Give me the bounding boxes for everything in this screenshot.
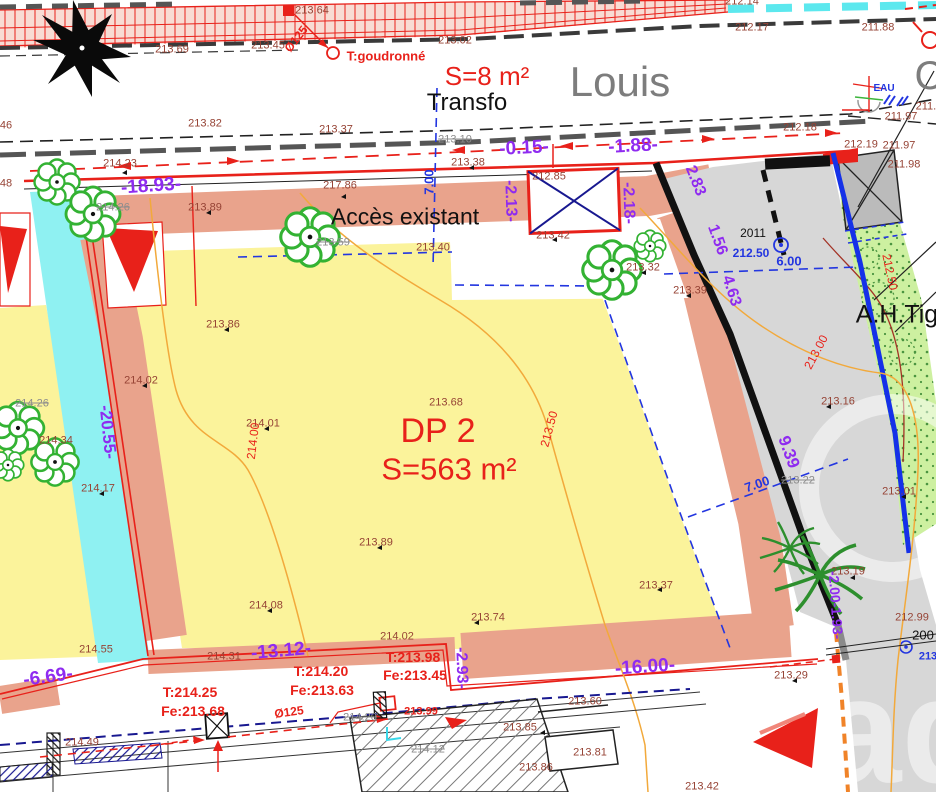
map-label: 213.89 [359, 538, 393, 549]
map-label: 211.88 [862, 23, 895, 34]
map-label: 212.14 [725, 0, 759, 8]
road-surface-label: T:goudronné [347, 50, 426, 63]
map-label: 212.85 [532, 172, 566, 183]
parcel-area-label: S=563 m² [381, 454, 516, 485]
map-label: 48 [0, 179, 12, 190]
map-label: 9.39 [775, 434, 802, 471]
map-label: Ø125 [282, 24, 310, 55]
map-label: 7.00 [743, 474, 771, 495]
map-label: 214.26 [15, 399, 49, 410]
map-label: 213.68 [429, 398, 463, 409]
parcel-id-label: DP 2 [401, 414, 476, 448]
map-label: 211.97 [883, 141, 916, 152]
transfo-area-label: S=8 m² [445, 63, 530, 89]
map-label: 6.00 [776, 255, 801, 268]
transfo-label: Transfo [427, 91, 507, 115]
map-label: 213.29 [774, 671, 808, 682]
map-label: 214.34 [39, 436, 73, 447]
map-label: 213.81 [573, 748, 607, 759]
map-label: 214.02 [124, 376, 158, 387]
map-label: 214.17 [81, 484, 115, 495]
map-label: 213.37 [639, 581, 673, 592]
map-label: 7.00 [423, 169, 436, 194]
map-label: 213.86 [519, 763, 553, 774]
map-label: 211.98 [888, 160, 921, 171]
map-label: 214.08 [249, 601, 283, 612]
map-label: 213.45 [251, 41, 285, 52]
map-label: 214.12 [411, 745, 445, 756]
map-label: 213.37 [319, 125, 353, 136]
map-label: -2.13- [501, 180, 518, 222]
cadastral-plan: ad [0, 0, 936, 792]
map-label: -18.93- [120, 174, 181, 197]
map-label: 212.99 [895, 613, 929, 624]
map-label: 212.19 [844, 140, 878, 151]
map-label: -0.15- [499, 137, 550, 159]
map-label: 213.02 [438, 36, 472, 47]
map-label: 213.89 [188, 203, 222, 214]
map-label: 214.23 [103, 159, 137, 170]
map-label: T:213.98 [386, 650, 440, 664]
map-label: 213.86 [206, 320, 240, 331]
street-name-label: Louis [570, 61, 670, 103]
map-label: 212.50 [733, 247, 770, 259]
map-label: 1.56 [704, 223, 730, 258]
map-label: 213.69 [155, 45, 189, 56]
map-label: 2.83 [682, 164, 709, 199]
contour-label: 214.00 [245, 422, 261, 460]
map-label: 217.86 [323, 181, 357, 192]
map-label: -6.69- [22, 664, 74, 690]
map-label: 213.16 [821, 397, 855, 408]
label-layer: 213.64213.69213.45213.02212.14212.17211.… [0, 0, 936, 792]
map-label: 213.42 [685, 782, 719, 792]
map-label: 213.59 [316, 238, 350, 249]
map-label: 214.31 [207, 652, 241, 663]
map-label: 214.02 [380, 632, 414, 643]
map-label: 46 [0, 121, 12, 132]
map-label: 213.40 [416, 243, 450, 254]
map-label: 213.32 [626, 263, 660, 274]
map-label: 211.8 [916, 102, 936, 113]
neighbor-label: A.H.Tig [856, 303, 936, 328]
map-label: T:214.20 [294, 664, 348, 678]
water-label: EAU [873, 84, 894, 94]
map-label: -2.00-1.93- [827, 570, 846, 639]
map-label: T:214.25 [163, 685, 217, 699]
contour-label: 213.50 [538, 410, 559, 449]
contour-label: 213.00 [802, 333, 830, 371]
map-label: 213.64 [295, 6, 329, 17]
map-label: 214.49 [65, 738, 99, 749]
access-label: Accès existant [331, 206, 479, 229]
contour-label: 212.50 [880, 253, 899, 291]
map-label: Fe:213.63 [290, 683, 354, 697]
map-label: 212.18 [783, 123, 817, 134]
map-label: 213.82 [188, 119, 222, 130]
map-label: 212.17 [735, 23, 769, 34]
map-label: 211.97 [885, 112, 918, 123]
map-label: 213.38 [451, 158, 485, 169]
map-label: Fe:213.45 [383, 668, 447, 682]
map-label: -20.55- [97, 404, 120, 459]
map-label: 4.63 [719, 274, 744, 309]
map-label: -1.88- [608, 135, 659, 157]
map-label: 213.60 [568, 697, 602, 708]
map-label: 213.99 [404, 707, 438, 718]
map-label: C [915, 56, 936, 96]
map-label: -2.93- [452, 647, 469, 689]
map-label: 213.74 [471, 613, 505, 624]
map-label: 213 [919, 652, 936, 663]
map-label: -2.18- [619, 182, 636, 224]
map-label: -16.00- [614, 655, 675, 678]
map-label: 213.42 [536, 231, 570, 242]
map-label: Ø125 [274, 704, 305, 720]
map-label: 214.20 [343, 713, 377, 724]
map-label: 213.39 [673, 286, 707, 297]
map-label: 214.55 [79, 645, 113, 656]
survey-year-label: 2011 [740, 227, 766, 239]
map-label: 213.10 [438, 135, 472, 146]
map-label: 213.85 [503, 723, 537, 734]
map-label: 213.01 [882, 487, 916, 498]
map-label: -13.12- [250, 639, 312, 663]
map-label: 200 [912, 629, 934, 642]
map-label: 213.22 [781, 476, 815, 487]
map-label: 214.26 [96, 203, 130, 214]
map-label: Fe:213.68 [161, 704, 225, 718]
